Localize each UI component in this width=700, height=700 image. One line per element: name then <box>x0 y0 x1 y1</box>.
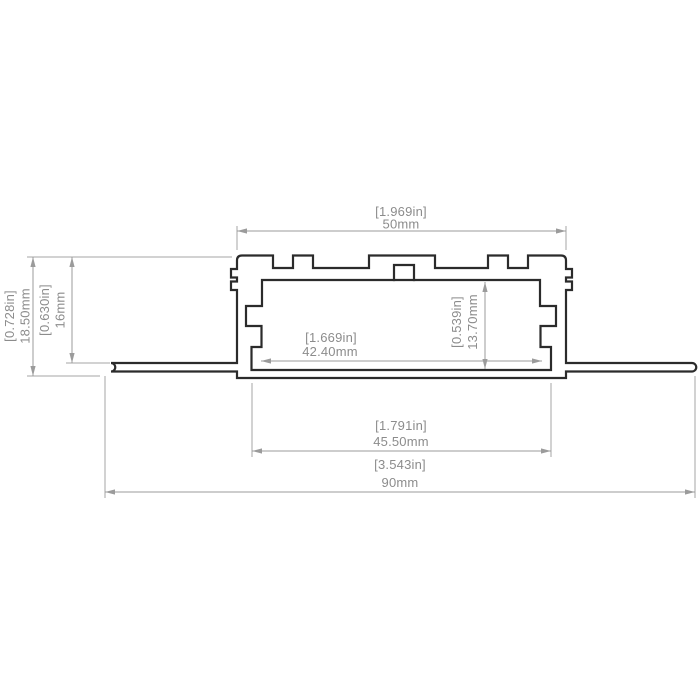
dim-label-metric: 50mm <box>383 217 420 232</box>
dim-inner-height: [0.539in] 13.70mm <box>449 282 488 369</box>
profile-inner-cavity-contour <box>246 280 556 370</box>
dim-label-metric: 13.70mm <box>465 294 480 350</box>
arrowhead-top <box>30 257 35 267</box>
dim-label-metric: 42.40mm <box>302 344 358 359</box>
arrowhead-right <box>532 358 542 363</box>
arrowhead-left <box>237 228 247 233</box>
dim-label-inch: [1.791in] <box>375 418 427 433</box>
arrowhead-bottom <box>30 366 35 376</box>
profile-cross-section <box>111 256 696 379</box>
arrowhead-left <box>105 489 115 494</box>
profile-outer-contour <box>111 256 696 379</box>
technical-drawing-page: [1.969in] 50mm [0.728in] 18.50mm [0.630i… <box>0 0 700 700</box>
arrowhead-left <box>252 448 262 453</box>
profile-center-screw-groove <box>394 265 414 280</box>
dim-label-metric: 45.50mm <box>373 434 429 449</box>
dim-label-inch: [0.630in] <box>37 284 52 336</box>
profile-drawing-svg: [1.969in] 50mm [0.728in] 18.50mm [0.630i… <box>0 0 700 700</box>
dim-label-inch: [0.728in] <box>2 290 17 342</box>
dim-label-metric: 18.50mm <box>18 288 33 344</box>
dim-label-inch: [0.539in] <box>449 296 464 348</box>
dim-flange-height: [0.630in] 16mm <box>37 257 110 363</box>
dim-top-width: [1.969in] 50mm <box>237 204 566 250</box>
arrowhead-top <box>482 282 487 292</box>
arrowhead-right <box>556 228 566 233</box>
arrowhead-right <box>541 448 551 453</box>
dim-inner-width: [1.669in] 42.40mm <box>261 330 542 364</box>
arrowhead-top <box>69 257 74 267</box>
dim-label-inch: [1.669in] <box>305 330 357 345</box>
arrowhead-bottom <box>69 353 74 363</box>
dim-cover-width: [1.791in] 45.50mm <box>252 383 551 457</box>
arrowhead-left <box>261 358 271 363</box>
arrowhead-bottom <box>482 359 487 369</box>
arrowhead-right <box>685 489 695 494</box>
dim-label-inch: [3.543in] <box>374 457 426 472</box>
dim-label-metric: 90mm <box>382 475 419 490</box>
dim-label-metric: 16mm <box>53 292 68 329</box>
